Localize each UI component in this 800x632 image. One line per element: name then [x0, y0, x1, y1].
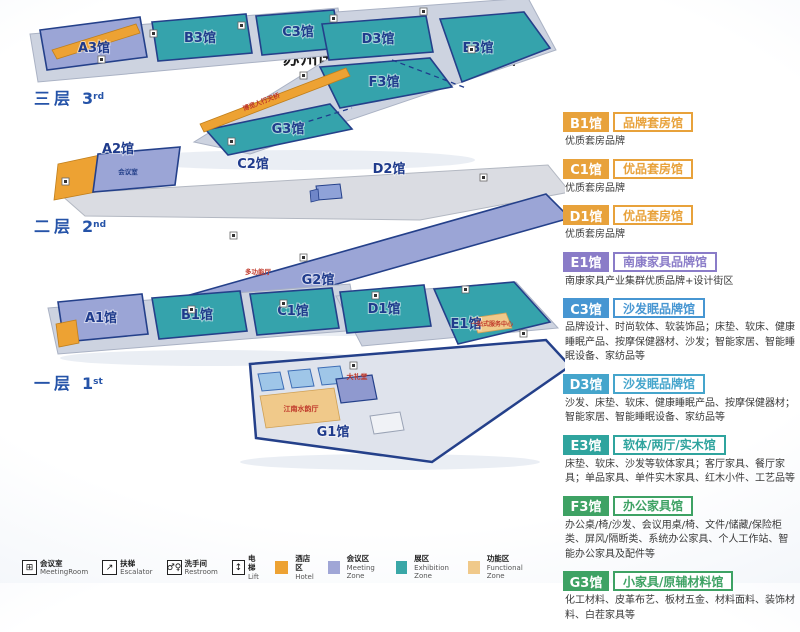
hall-a2-label: A2馆 — [102, 141, 134, 157]
e1-one-stop-label: 一站式服务中心 — [471, 320, 513, 328]
hall-name-box: 软体/两厅/实木馆 — [613, 435, 726, 455]
hall-b1-label: B1馆 — [181, 307, 213, 323]
escalator-icon: ↗ — [102, 560, 117, 575]
zone-en: Hotel — [295, 573, 315, 581]
zone-en: Exhibition Zone — [414, 564, 455, 581]
legend-lift: ↕ 电梯 Lift — [232, 554, 261, 581]
hall-desc: 品牌设计、时尚软体、软装饰品；床垫、软床、健康睡眠产品、按摩保健器材、沙发；智能… — [563, 321, 795, 365]
floor3-label: 三层3rd — [34, 89, 104, 108]
facility-en: Lift — [248, 573, 261, 581]
facility-en: Restroom — [185, 568, 218, 576]
floorplan-map: 博览人行天桥 A3馆 B3馆 C3馆 D3馆 E3馆 F3馆 G3馆 三层3rd… — [0, 0, 565, 470]
floor1-label: 一层1st — [34, 374, 104, 393]
zone-zh: 功能区 — [487, 554, 529, 563]
restroom-icon: ♂♀ — [167, 560, 182, 575]
facility-zh: 电梯 — [248, 554, 261, 573]
hall-name-box: 品牌套房馆 — [613, 112, 693, 132]
hall-name-box: 沙发眠品牌馆 — [613, 374, 705, 394]
legend-entry-e3: E3馆 软体/两厅/实木馆 床垫、软床、沙发等软体家具；客厅家具、餐厅家具；单品… — [563, 435, 795, 487]
hall-code-badge: G3馆 — [563, 571, 609, 591]
g2-multi-hall-label: 多功能厅 — [245, 267, 272, 276]
hall-code-badge: C3馆 — [563, 298, 609, 318]
g1-entrance-box — [370, 412, 404, 434]
facility-zh: 洗手间 — [185, 559, 218, 568]
a2-meeting-room-label: 会议室 — [118, 167, 138, 176]
hall-desc: 优质套房品牌 — [563, 228, 795, 243]
zone-zh: 展区 — [414, 554, 455, 563]
meeting-room-icon: ⊞ — [22, 560, 37, 575]
legend-zone-meeting: 会议区 Meeting Zone — [328, 554, 383, 580]
hall-name-box: 小家具/原辅材料馆 — [613, 571, 733, 591]
hall-code-badge: E1馆 — [563, 252, 609, 272]
hall-c3-label: C3馆 — [282, 24, 314, 40]
functional-zone-swatch — [468, 561, 479, 574]
hall-a1-label: A1馆 — [85, 310, 117, 326]
zone-zh: 会议区 — [347, 554, 383, 563]
legend-entry-b1: B1馆 品牌套房馆 优质套房品牌 — [563, 112, 795, 150]
legend-zone-exhibition: 展区 Exhibition Zone — [396, 554, 456, 580]
hall-d2-label: D2馆 — [373, 161, 406, 177]
legend-entry-e1: E1馆 南康家具品牌馆 南康家具产业集群优质品牌+设计街区 — [563, 252, 795, 290]
hall-name-box: 优品套房馆 — [613, 159, 693, 179]
hall-desc: 床垫、软床、沙发等软体家具；客厅家具、餐厅家具；单品家具、单件实木家具、红木小件… — [563, 458, 795, 487]
legend-meeting-room: ⊞ 会议室 MeetingRoom — [22, 559, 88, 577]
legend-entry-f3: F3馆 办公家具馆 办公桌/椅/沙发、会议用桌/椅、文件/储藏/保险柜类、屏风/… — [563, 496, 795, 563]
legend-escalator: ↗ 扶梯 Escalator — [102, 559, 152, 577]
hall-desc: 化工材料、皮革布艺、板材五金、材料面料、装饰材料、白茬家具等 — [563, 594, 795, 623]
g1-jiangnan-label: 江南水韵厅 — [284, 404, 319, 413]
hall-name-box: 办公家具馆 — [613, 496, 693, 516]
floor2-label: 二层2nd — [34, 217, 106, 236]
truck-cab-icon — [310, 189, 319, 202]
legend-entry-d1: D1馆 优品套房馆 优质套房品牌 — [563, 205, 795, 243]
hotel-zone-swatch — [275, 561, 288, 574]
legend-zone-functional: 功能区 Functional Zone — [468, 554, 529, 580]
hall-code-badge: C1馆 — [563, 159, 609, 179]
hall-f3-label: F3馆 — [369, 74, 400, 90]
a1-hotel-block — [56, 320, 79, 347]
meeting-zone-swatch — [328, 561, 339, 574]
hall-desc: 南康家具产业集群优质品牌+设计街区 — [563, 275, 795, 290]
hall-c2-label: C2馆 — [237, 156, 269, 172]
hall-desc: 沙发、床垫、软床、健康睡眠产品、按摩保健器材；智能家居、智能睡眠设备、家纺品等 — [563, 397, 795, 426]
hall-code-badge: B1馆 — [563, 112, 609, 132]
legend-restroom: ♂♀ 洗手间 Restroom — [167, 559, 218, 577]
hall-code-badge: F3馆 — [563, 496, 609, 516]
hall-d3-label: D3馆 — [362, 31, 395, 47]
hall-desc: 办公桌/椅/沙发、会议用桌/椅、文件/储藏/保险柜类、屏风/隔断类、系统办公家具… — [563, 519, 795, 563]
floor3-group: 博览人行天桥 A3馆 B3馆 C3馆 D3馆 E3馆 F3馆 G3馆 三层3rd — [30, 0, 556, 155]
hall-b3-label: B3馆 — [184, 30, 216, 46]
facility-en: Escalator — [120, 568, 152, 576]
facility-en: MeetingRoom — [40, 568, 88, 576]
legend-entry-d3: D3馆 沙发眠品牌馆 沙发、床垫、软床、健康睡眠产品、按摩保健器材；智能家居、智… — [563, 374, 795, 426]
zone-en: Functional Zone — [487, 564, 529, 581]
legend-entry-c1: C1馆 优品套房馆 优质套房品牌 — [563, 159, 795, 197]
hall-d1-label: D1馆 — [368, 301, 401, 317]
hall-a3-label: A3馆 — [78, 40, 110, 56]
facility-zh: 会议室 — [40, 559, 88, 568]
truck-icon — [316, 184, 342, 200]
hall-code-badge: D3馆 — [563, 374, 609, 394]
bottom-legend: ⊞ 会议室 MeetingRoom ↗ 扶梯 Escalator ♂♀ 洗手间 … — [22, 554, 542, 581]
g1-block-1 — [258, 372, 284, 391]
exhibition-zone-swatch — [396, 561, 407, 574]
g1-block-2 — [288, 369, 314, 388]
hall-e3-label: E3馆 — [463, 40, 494, 56]
legend-entry-g3: G3馆 小家具/原辅材料馆 化工材料、皮革布艺、板材五金、材料面料、装饰材料、白… — [563, 571, 795, 623]
hall-g3-label: G3馆 — [272, 121, 305, 137]
lift-icon: ↕ — [232, 560, 245, 575]
legend-zone-hotel: 酒店区 Hotel — [275, 554, 316, 581]
hall-desc: 优质套房品牌 — [563, 182, 795, 197]
legend-entry-c3: C3馆 沙发眠品牌馆 品牌设计、时尚软体、软装饰品；床垫、软床、健康睡眠产品、按… — [563, 298, 795, 365]
hall-desc: 优质套房品牌 — [563, 135, 795, 150]
zone-zh: 酒店区 — [295, 554, 315, 573]
hall-legend-panel: B1馆 品牌套房馆 优质套房品牌 C1馆 优品套房馆 优质套房品牌 D1馆 优品… — [563, 112, 795, 632]
zone-en: Meeting Zone — [347, 564, 383, 581]
hall-name-box: 南康家具品牌馆 — [613, 252, 717, 272]
facility-zh: 扶梯 — [120, 559, 152, 568]
hall-code-badge: E3馆 — [563, 435, 609, 455]
hall-code-badge: D1馆 — [563, 205, 609, 225]
hall-g1-label: G1馆 — [317, 424, 350, 440]
g1-auditorium-label: 大礼堂 — [347, 372, 368, 381]
floor1-group: A1馆 B1馆 C1馆 D1馆 E1馆 一站式服务中心 大礼堂 江南水韵厅 G1… — [34, 282, 565, 462]
hall-name-box: 沙发眠品牌馆 — [613, 298, 705, 318]
hall-name-box: 优品套房馆 — [613, 205, 693, 225]
